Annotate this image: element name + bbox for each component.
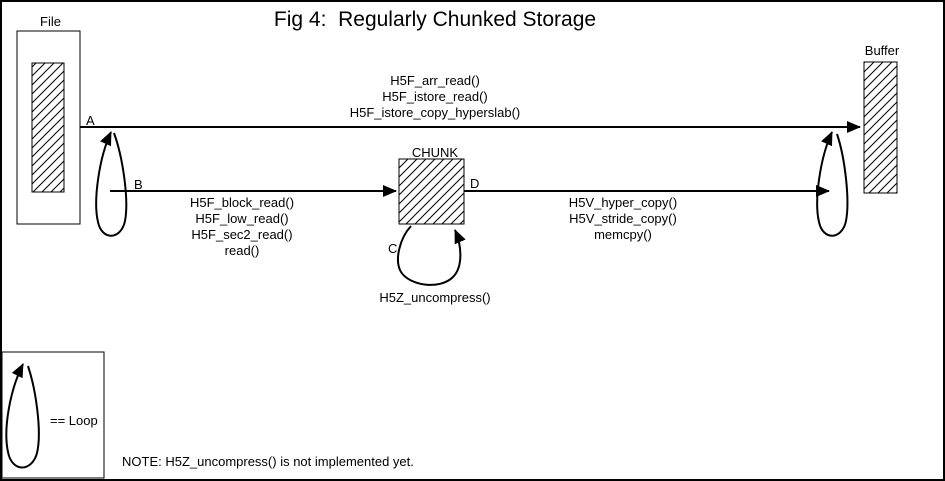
loop-left-icon (96, 132, 126, 236)
file-data-rect (32, 63, 64, 192)
arrow-b-functions: H5F_block_read() H5F_low_read() H5F_sec2… (190, 195, 294, 259)
function-name: H5F_low_read() (190, 211, 294, 227)
figure-title: Fig 4: Regularly Chunked Storage (274, 7, 596, 32)
function-name: H5F_istore_read() (350, 89, 521, 105)
arrow-c-label: C (388, 241, 397, 257)
function-name: H5F_sec2_read() (190, 227, 294, 243)
file-box-label: File (40, 14, 61, 30)
buffer-box-label: Buffer (865, 43, 899, 59)
arrow-a-label: A (86, 113, 95, 129)
function-name: H5V_hyper_copy() (569, 195, 677, 211)
figure-canvas: Fig 4: Regularly Chunked Storage File Bu… (0, 0, 945, 481)
loop-c-icon (398, 226, 460, 285)
function-name: memcpy() (569, 227, 677, 243)
arrow-d-functions: H5V_hyper_copy() H5V_stride_copy() memcp… (569, 195, 677, 243)
legend-loop-icon (6, 364, 38, 468)
function-name: H5F_block_read() (190, 195, 294, 211)
arrow-a-functions: H5F_arr_read() H5F_istore_read() H5F_ist… (350, 73, 521, 121)
loop-right-icon (817, 132, 847, 236)
function-name: H5F_istore_copy_hyperslab() (350, 105, 521, 121)
function-name: H5V_stride_copy() (569, 211, 677, 227)
legend-label: == Loop (50, 413, 98, 429)
arrow-b-label: B (134, 177, 143, 193)
chunk-box-label: CHUNK (412, 145, 458, 161)
note-text: NOTE: H5Z_uncompress() is not implemente… (122, 454, 414, 470)
function-name: read() (190, 243, 294, 259)
function-name: H5F_arr_read() (350, 73, 521, 89)
buffer-rect (864, 62, 897, 193)
chunk-rect (399, 159, 464, 224)
arrow-d-label: D (470, 176, 479, 192)
arrow-c-function: H5Z_uncompress() (379, 290, 490, 306)
